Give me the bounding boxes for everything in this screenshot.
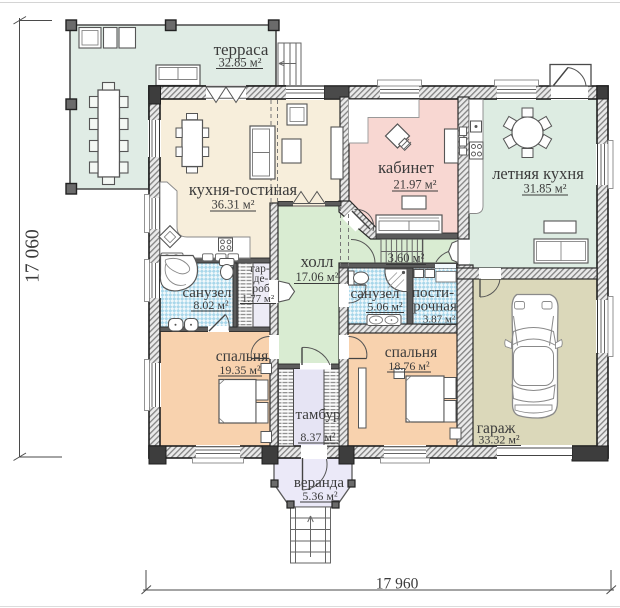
svg-text:кабинет: кабинет: [378, 158, 434, 177]
svg-text:31.85 м²: 31.85 м²: [524, 182, 567, 196]
svg-text:3.87 м²: 3.87 м²: [423, 314, 456, 326]
svg-text:17 960: 17 960: [376, 576, 419, 593]
svg-text:кухня-гостиная: кухня-гостиная: [189, 180, 298, 199]
svg-text:36.31 м²: 36.31 м²: [212, 198, 255, 212]
svg-text:5.36 м²: 5.36 м²: [302, 489, 338, 503]
svg-text:33.32 м²: 33.32 м²: [478, 433, 520, 447]
svg-text:32.85 м²: 32.85 м²: [219, 56, 262, 70]
svg-text:холл: холл: [300, 252, 334, 271]
svg-text:5.06 м²: 5.06 м²: [367, 300, 403, 314]
svg-text:летняя кухня: летняя кухня: [492, 164, 584, 183]
svg-text:19.35 м²: 19.35 м²: [219, 363, 261, 377]
svg-text:21.97 м²: 21.97 м²: [394, 178, 437, 192]
svg-text:8.02 м²: 8.02 м²: [193, 298, 229, 312]
svg-text:18.76 м²: 18.76 м²: [388, 359, 430, 373]
svg-text:тамбур: тамбур: [296, 407, 341, 423]
svg-text:17 060: 17 060: [23, 229, 44, 283]
svg-text:рочная: рочная: [413, 299, 457, 315]
svg-text:8.37 м²: 8.37 м²: [300, 430, 336, 444]
svg-text:3.60 м²: 3.60 м²: [388, 251, 425, 265]
svg-text:17.06 м²: 17.06 м²: [296, 270, 339, 284]
